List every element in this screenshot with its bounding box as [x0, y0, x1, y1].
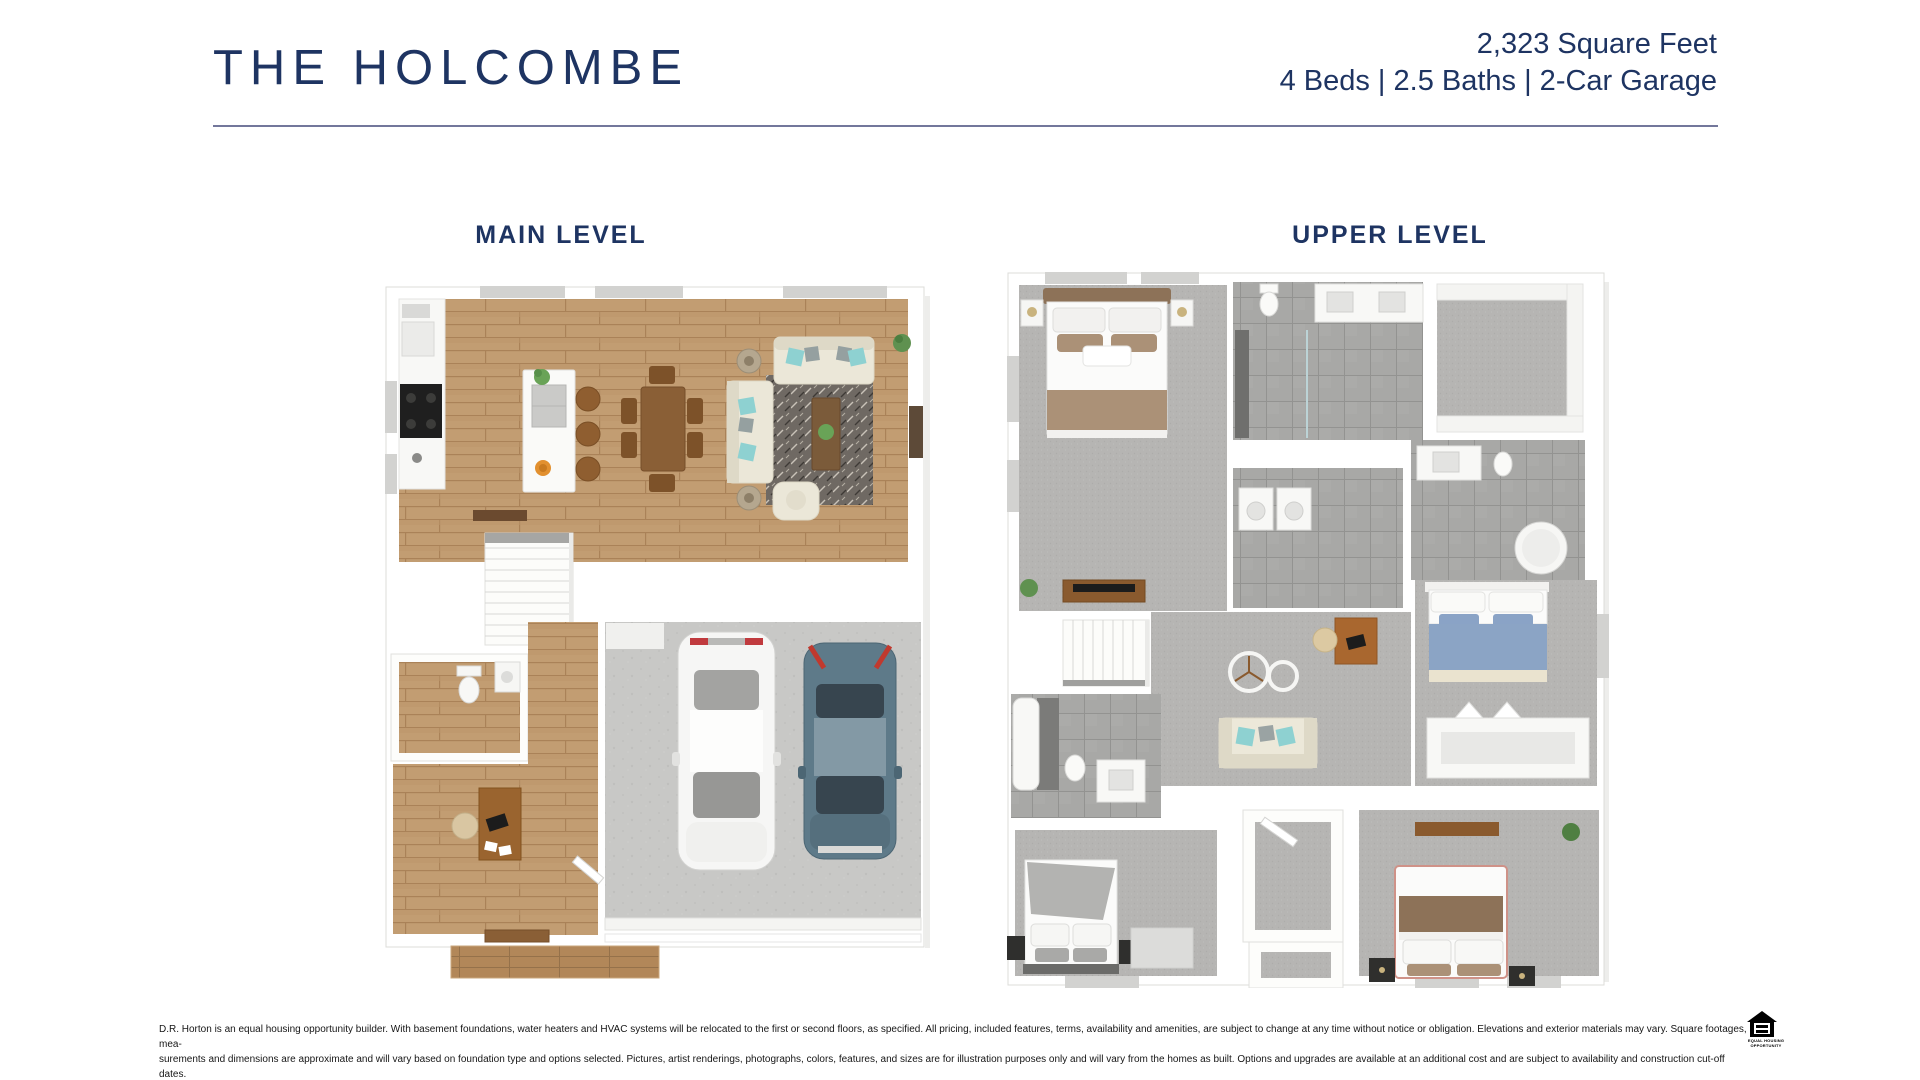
home-stats: 2,323 Square Feet 4 Beds | 2.5 Baths | 2…	[1280, 26, 1717, 100]
equal-housing-house-icon	[1746, 1011, 1778, 1037]
primary-bedroom	[1007, 272, 1227, 611]
white-car	[672, 632, 781, 870]
equal-housing-opportunity-logo: EQUAL HOUSING OPPORTUNITY	[1746, 1011, 1786, 1048]
upper-staircase	[1063, 620, 1149, 686]
powder-room	[391, 654, 528, 761]
floor-plan-brochure-page: THE HOLCOMBE 2,323 Square Feet 4 Beds | …	[0, 0, 1920, 1080]
bedroom-3	[1415, 580, 1609, 786]
desk-chair	[1313, 628, 1337, 652]
blue-car	[798, 643, 902, 859]
equal-housing-text-line-2: OPPORTUNITY	[1746, 1043, 1786, 1048]
bedroom-2	[1359, 810, 1599, 988]
primary-bed	[1047, 302, 1167, 438]
disclaimer-line-1: D.R. Horton is an equal housing opportun…	[159, 1022, 1751, 1052]
loveseat	[1219, 718, 1317, 768]
hall-bathroom	[1011, 694, 1161, 818]
primary-bathroom	[1233, 282, 1423, 440]
bedroom-4	[1007, 830, 1217, 988]
toilet	[1260, 292, 1278, 316]
toilet	[459, 677, 479, 703]
front-door	[485, 930, 549, 942]
garage	[605, 622, 921, 942]
toilet	[1065, 755, 1085, 781]
upper-level-label: UPPER LEVEL	[1292, 221, 1488, 250]
disclaimer-line-2: surements and dimensions are approximate…	[159, 1052, 1751, 1080]
main-level-floor-plan-image	[385, 286, 930, 981]
laundry-room	[1233, 468, 1403, 608]
legal-disclaimer: D.R. Horton is an equal housing opportun…	[159, 1022, 1751, 1080]
bathtub	[1013, 698, 1039, 790]
header-divider	[213, 125, 1718, 127]
cooktop	[400, 384, 442, 438]
bathroom-2	[1411, 440, 1585, 580]
bar-stool	[576, 457, 600, 481]
sofa	[727, 381, 773, 483]
front-porch	[451, 946, 659, 978]
walk-in-closet	[1437, 284, 1583, 432]
loft	[1151, 612, 1411, 786]
desk-chair	[452, 813, 478, 839]
bar-stool	[576, 422, 600, 446]
bar-stool	[576, 387, 600, 411]
shelf	[1415, 822, 1499, 836]
blue-blanket	[1429, 624, 1547, 670]
upper-level-floor-plan-image	[1007, 272, 1609, 988]
nightstand	[1007, 936, 1025, 960]
main-level-label: MAIN LEVEL	[475, 221, 646, 250]
toilet	[1494, 452, 1512, 476]
beds-baths-garage: 4 Beds | 2.5 Baths | 2-Car Garage	[1280, 63, 1717, 100]
square-feet: 2,323 Square Feet	[1280, 26, 1717, 63]
hall-closets	[1243, 810, 1343, 988]
garage-door	[605, 918, 921, 930]
page-title: THE HOLCOMBE	[213, 44, 689, 93]
sofa	[774, 337, 874, 384]
